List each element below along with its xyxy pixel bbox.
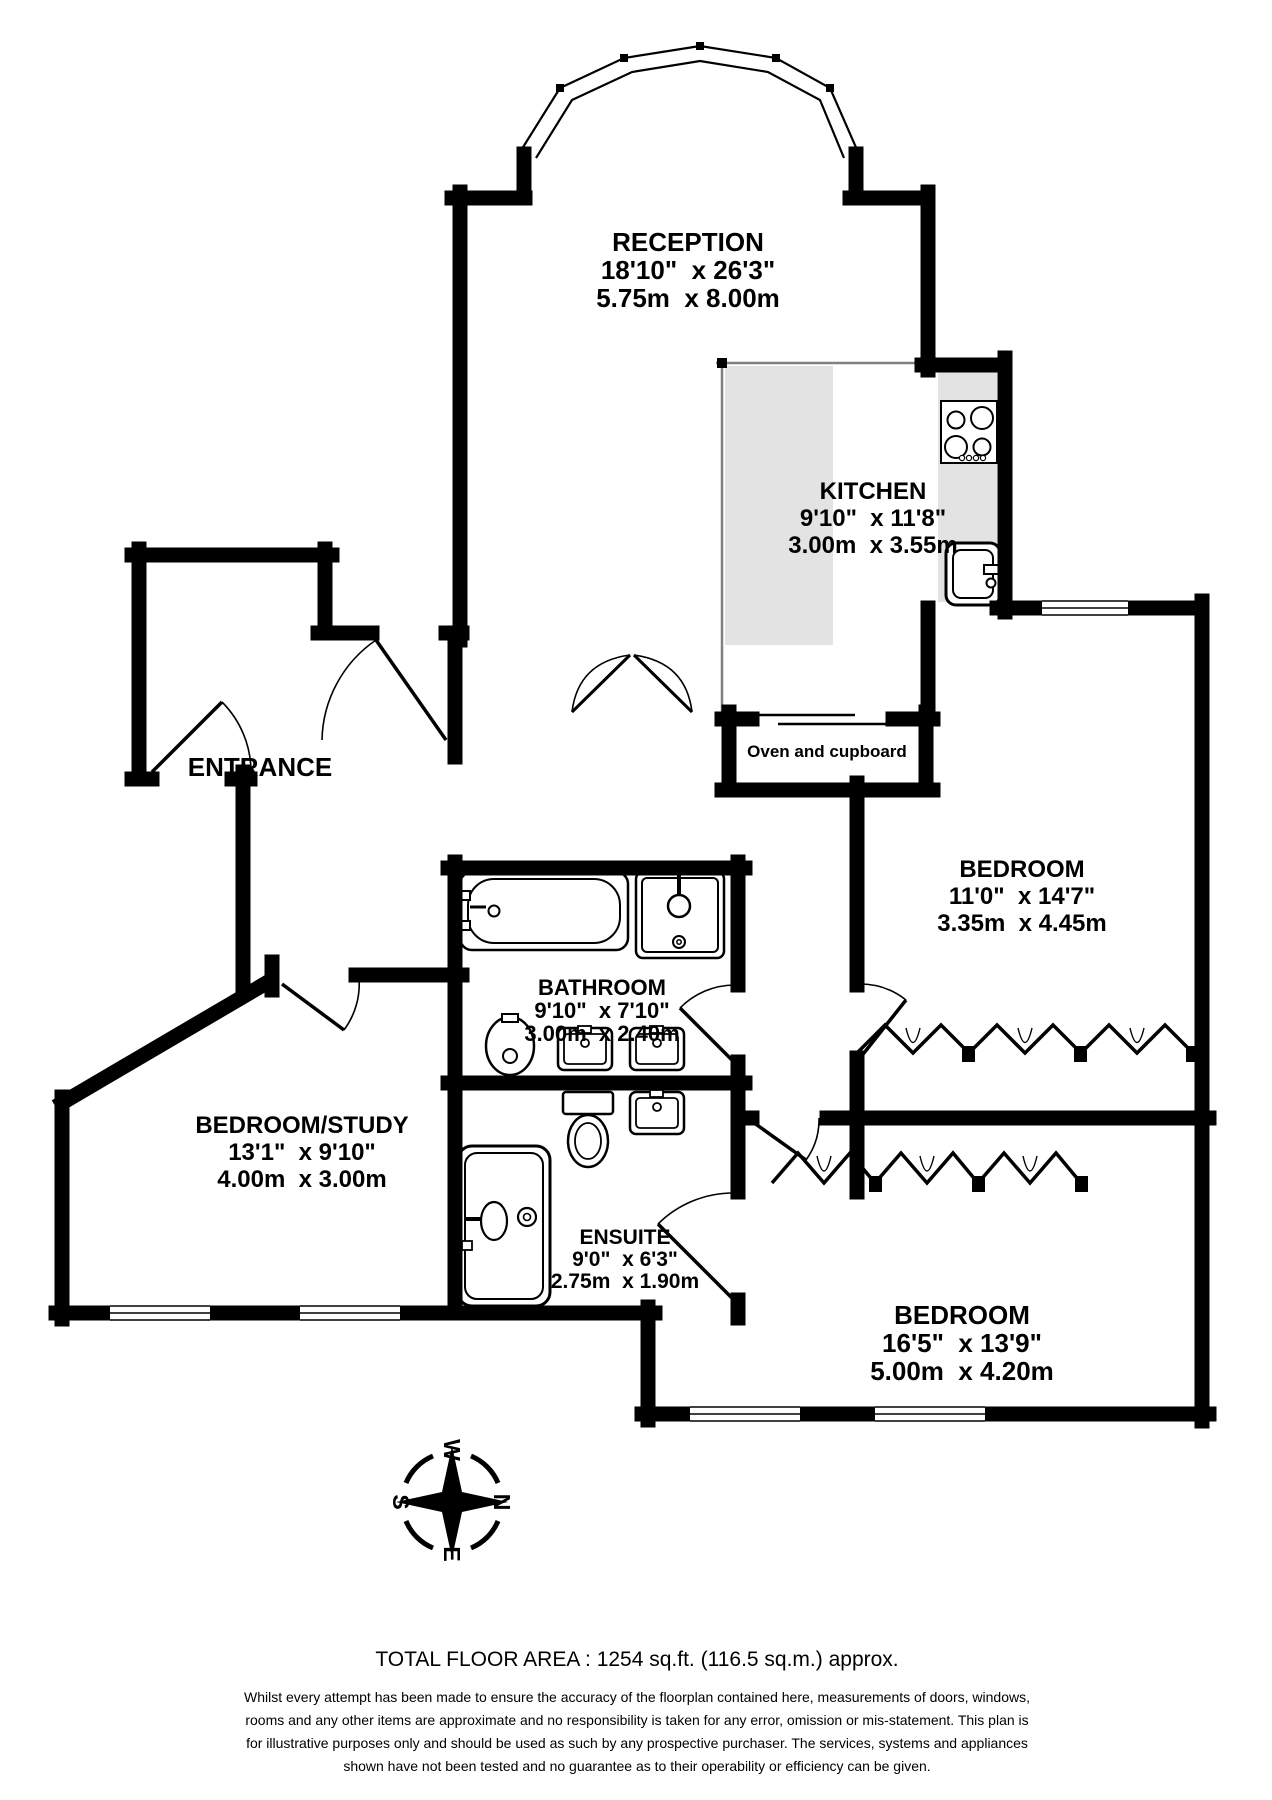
oven-cupboard-label: Oven and cupboard (737, 742, 917, 762)
room-name: BEDROOM (812, 1301, 1112, 1329)
compass-north-label: N (489, 1494, 515, 1511)
room-label-bedroom1: BEDROOM 11'0" x 14'7" 3.35m x 4.45m (872, 856, 1172, 937)
room-label-bedroom2: BEDROOM 16'5" x 13'9" 5.00m x 4.20m (812, 1301, 1112, 1385)
room-dims-metric: 4.00m x 3.00m (152, 1166, 452, 1193)
compass-south-label: S (388, 1494, 414, 1509)
room-label-bedroom-study: BEDROOM/STUDY 13'1" x 9'10" 4.00m x 3.00… (152, 1112, 452, 1193)
corner-tick (717, 358, 727, 368)
room-dims-metric: 5.75m x 8.00m (538, 284, 838, 312)
room-dims-imperial: 9'0" x 6'3" (530, 1249, 720, 1271)
room-name: ENSUITE (530, 1227, 720, 1249)
room-label-reception: RECEPTION 18'10" x 26'3" 5.75m x 8.00m (538, 228, 838, 312)
room-name: BATHROOM (477, 976, 727, 999)
room-name: ENTRANCE (150, 753, 370, 781)
room-dims-metric: 3.35m x 4.45m (872, 910, 1172, 937)
floorplan-page: N E S W RECEPTION 18'10" x 26'3" 5.75m x… (0, 0, 1272, 1800)
shower-icon (636, 872, 724, 958)
wardrobe-bifold-icon (857, 1025, 1199, 1062)
wardrobe-bifold-icon (772, 1153, 1088, 1192)
room-label-kitchen: KITCHEN 9'10" x 11'8" 3.00m x 3.55m (748, 478, 998, 559)
room-dims-imperial: 16'5" x 13'9" (812, 1329, 1112, 1357)
compass-west-label: W (439, 1439, 465, 1461)
room-label-bathroom: BATHROOM 9'10" x 7'10" 3.00m x 2.40m (477, 976, 727, 1045)
room-dims-metric: 2.75m x 1.90m (530, 1271, 720, 1293)
toilet-icon (563, 1092, 613, 1167)
hob-icon (941, 401, 997, 463)
basin-icon (630, 1090, 684, 1134)
compass-east-label: E (439, 1546, 465, 1561)
room-label-ensuite: ENSUITE 9'0" x 6'3" 2.75m x 1.90m (530, 1227, 720, 1293)
total-floor-area: TOTAL FLOOR AREA : 1254 sq.ft. (116.5 sq… (257, 1648, 1017, 1672)
bay-window-icon (520, 42, 858, 158)
room-name: KITCHEN (748, 478, 998, 505)
room-dims-metric: 3.00m x 2.40m (477, 1022, 727, 1045)
room-dims-imperial: 18'10" x 26'3" (538, 256, 838, 284)
room-dims-metric: 3.00m x 3.55m (748, 532, 998, 559)
room-dims-imperial: 13'1" x 9'10" (152, 1139, 452, 1166)
room-dims-metric: 5.00m x 4.20m (812, 1357, 1112, 1385)
bathtub-icon (460, 872, 628, 950)
room-label-entrance: ENTRANCE (150, 753, 370, 781)
room-dims-imperial: 9'10" x 11'8" (748, 505, 998, 532)
oven-cupboard-text: Oven and cupboard (747, 742, 907, 761)
room-name: BEDROOM (872, 856, 1172, 883)
room-name: RECEPTION (538, 228, 838, 256)
room-name: BEDROOM/STUDY (152, 1112, 452, 1139)
oven-cupboard-front-lines (745, 715, 893, 724)
disclaimer-text: Whilst every attempt has been made to en… (237, 1686, 1037, 1778)
room-dims-imperial: 9'10" x 7'10" (477, 999, 727, 1022)
room-dims-imperial: 11'0" x 14'7" (872, 883, 1172, 910)
compass-rose-icon: N E S W (388, 1439, 515, 1562)
